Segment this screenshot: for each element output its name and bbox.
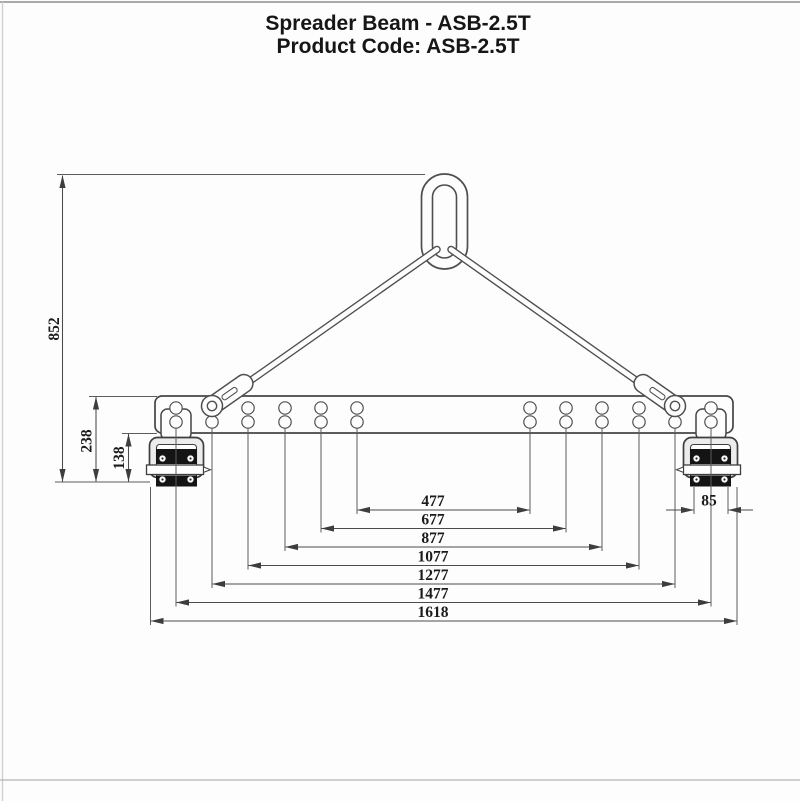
beam-hole xyxy=(242,416,254,428)
dim-label-1077: 1077 xyxy=(418,549,449,566)
beam-hole xyxy=(596,402,608,414)
beam-hole xyxy=(351,416,363,428)
dim-label-1477: 1477 xyxy=(418,586,449,603)
dim-label-overall-height: 852 xyxy=(46,317,63,341)
dim-label-877: 877 xyxy=(421,530,445,547)
beam-hole xyxy=(633,402,645,414)
sling-leg-right xyxy=(451,250,647,389)
beam-hole xyxy=(560,402,572,414)
beam-hole xyxy=(206,416,218,428)
product-code: Product Code: ASB-2.5T xyxy=(276,35,519,58)
spreader-beam xyxy=(155,396,733,433)
beam-hole xyxy=(351,402,363,414)
dim-label-138: 138 xyxy=(111,446,128,470)
beam-hole xyxy=(669,416,681,428)
beam-hole xyxy=(633,416,645,428)
technical-drawing: Spreader Beam - ASB-2.5T Product Code: A… xyxy=(0,0,800,801)
dim-label-1277: 1277 xyxy=(418,567,449,584)
dim-label-jaw-width: 85 xyxy=(701,493,717,510)
page-title: Spreader Beam - ASB-2.5T xyxy=(265,12,530,35)
beam-clamp-right xyxy=(677,438,741,487)
dim-label-238: 238 xyxy=(79,429,96,453)
beam-hole xyxy=(524,402,536,414)
beam-hole xyxy=(705,416,717,428)
beam-hole xyxy=(242,402,254,414)
beam-hole xyxy=(279,402,291,414)
beam-hole xyxy=(170,402,182,414)
beam-hole xyxy=(315,402,327,414)
dim-label-677: 677 xyxy=(421,512,445,529)
beam-hole xyxy=(315,416,327,428)
dim-label-477: 477 xyxy=(421,493,445,510)
beam-hole xyxy=(170,416,182,428)
sling-leg-left xyxy=(240,250,437,389)
beam-hole xyxy=(596,416,608,428)
dim-label-overall-length: 1618 xyxy=(418,604,449,621)
beam-hole xyxy=(560,416,572,428)
beam-hole xyxy=(524,416,536,428)
beam-hole xyxy=(279,416,291,428)
drawing-page: Spreader Beam - ASB-2.5T Product Code: A… xyxy=(0,0,800,801)
beam-clamp-left xyxy=(147,438,211,487)
beam-hole xyxy=(705,402,717,414)
